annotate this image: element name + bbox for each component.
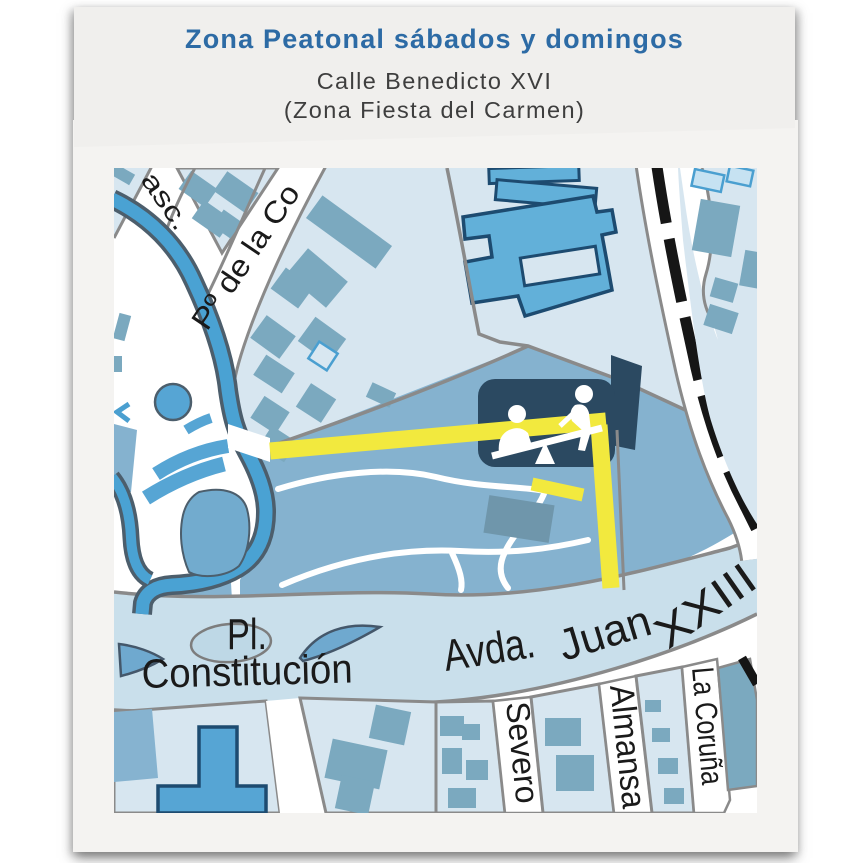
svg-text:Constitución: Constitución — [141, 645, 353, 697]
